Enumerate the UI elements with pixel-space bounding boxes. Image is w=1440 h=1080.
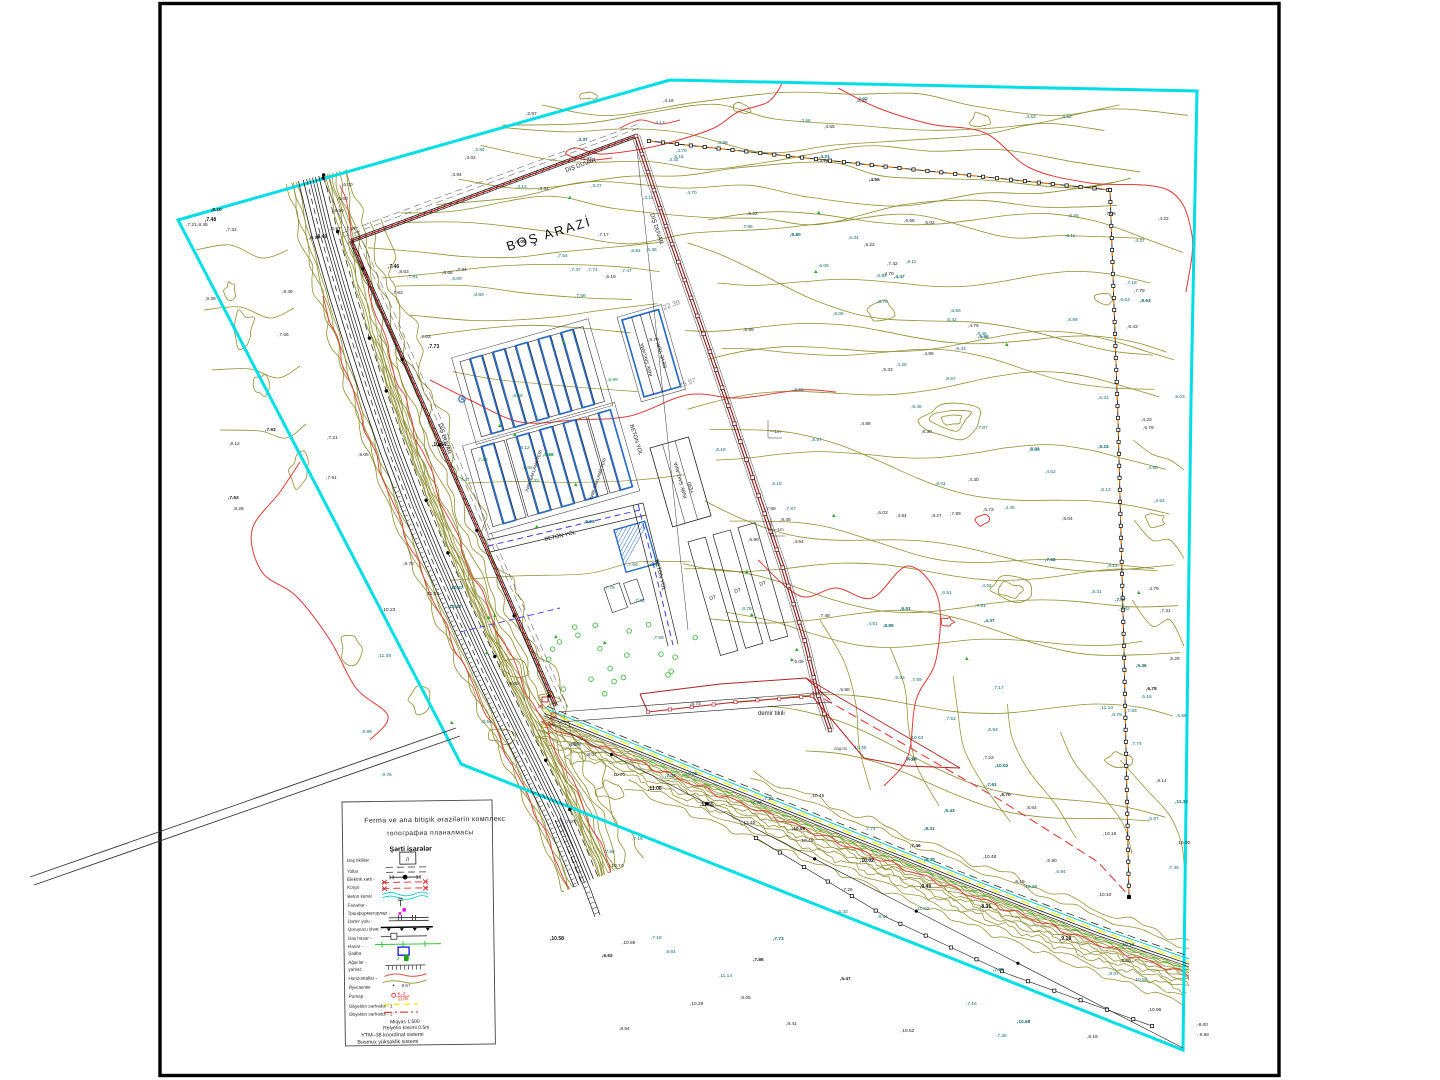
svg-text:,4.50: ,4.50 [1147, 465, 1158, 471]
svg-text:,6.33: ,6.33 [955, 346, 966, 352]
svg-text:,9.43: ,9.43 [944, 808, 955, 814]
svg-text:,9.76: ,9.76 [381, 772, 392, 778]
svg-text:,8.37: ,8.37 [1108, 971, 1119, 977]
svg-text:топографиа планалмасы: топографиа планалмасы [386, 829, 473, 837]
svg-text:,8.70: ,8.70 [309, 235, 320, 241]
svg-text:,10.48: ,10.48 [983, 854, 997, 860]
svg-text:,3.72: ,3.72 [818, 158, 829, 164]
svg-text:,7.07: ,7.07 [977, 425, 988, 431]
svg-text:,10.30: ,10.30 [853, 745, 867, 751]
svg-text:,7.73: ,7.73 [773, 936, 784, 942]
svg-text:Hasar -: Hasar - [348, 944, 364, 949]
svg-text:,6.63: ,6.63 [1119, 297, 1130, 303]
svg-text:,8.68: ,8.68 [543, 452, 554, 458]
svg-text:,5.42: ,5.42 [946, 317, 957, 323]
svg-text:,8.89: ,8.89 [883, 623, 894, 629]
svg-text:,-8.00: ,-8.00 [1196, 1022, 1208, 1027]
svg-text:,6.51: ,6.51 [900, 606, 911, 612]
svg-text:,9.84: ,9.84 [877, 914, 888, 920]
svg-text:,8.46: ,8.46 [976, 331, 987, 337]
svg-text:Л: Л [406, 857, 409, 863]
svg-text:,2.97: ,2.97 [526, 111, 537, 117]
svg-text:,10.52: ,10.52 [901, 1028, 915, 1034]
svg-text:,6.04: ,6.04 [1029, 446, 1040, 452]
svg-text:,6.93: ,6.93 [987, 727, 998, 733]
svg-text:,8.12: ,8.12 [1107, 563, 1118, 569]
svg-text:Транформаторлар -: Транформаторлар - [348, 910, 391, 916]
svg-text:,8.19: ,8.19 [1087, 1034, 1098, 1040]
svg-text:,5.87: ,5.87 [1148, 816, 1159, 822]
svg-text:,6.60: ,6.60 [337, 196, 348, 202]
svg-text:,8.40: ,8.40 [780, 517, 791, 523]
svg-text:,8.99: ,8.99 [361, 729, 372, 735]
svg-text:,10.42: ,10.42 [448, 604, 462, 610]
svg-text:,7.66: ,7.66 [278, 332, 289, 338]
svg-text:,8.76: ,8.76 [741, 606, 752, 612]
svg-text:,6.97: ,6.97 [330, 226, 341, 232]
svg-text:,11.14: ,11.14 [719, 973, 732, 979]
svg-text:,6.99: ,6.99 [607, 377, 618, 383]
svg-text:,6.03: ,6.03 [877, 510, 888, 516]
svg-text:,8.27: ,8.27 [931, 513, 942, 519]
svg-text:,10.50: ,10.50 [1134, 977, 1148, 983]
svg-text:,4.51: ,4.51 [867, 621, 878, 627]
svg-text:,9.50: ,9.50 [481, 719, 492, 725]
svg-text:,9.38: ,9.38 [205, 296, 216, 302]
svg-text:,11.10: ,11.10 [1100, 705, 1113, 711]
svg-text:,10.29: ,10.29 [690, 1001, 704, 1007]
svg-text:,9.49: ,9.49 [282, 289, 293, 295]
svg-text:,10.02: ,10.02 [995, 763, 1009, 769]
svg-text:,8.31: ,8.31 [924, 826, 935, 832]
svg-text:,7.22: ,7.22 [983, 755, 994, 761]
svg-text:,5.36: ,5.36 [1136, 663, 1147, 669]
svg-text:,3.53: ,3.53 [1025, 114, 1036, 120]
svg-text:Ağaclar -: Ağaclar - [348, 960, 367, 965]
svg-text:,4.16: ,4.16 [663, 98, 674, 104]
svg-text:,8.64: ,8.64 [665, 949, 676, 955]
svg-text:,7.63: ,7.63 [228, 495, 239, 501]
svg-text:,7.15: ,7.15 [632, 836, 643, 842]
svg-text:,5.59: ,5.59 [1176, 713, 1187, 719]
svg-text:dagıntı: dagıntı [834, 746, 847, 751]
svg-text:,9.14: ,9.14 [1156, 778, 1167, 784]
svg-text:,7.31: ,7.31 [1160, 608, 1171, 614]
svg-text:,7.67: ,7.67 [785, 506, 796, 512]
svg-text:,5.90: ,5.90 [333, 208, 344, 214]
svg-text:,4.22: ,4.22 [1158, 216, 1169, 222]
svg-text:,7.73: ,7.73 [428, 344, 439, 350]
svg-text:,7.08: ,7.08 [993, 967, 1004, 973]
svg-text:,8.30: ,8.30 [921, 429, 932, 435]
svg-text:,10.23: ,10.23 [382, 607, 396, 613]
svg-text:,7.68: ,7.68 [765, 506, 776, 512]
svg-text:,6.00: ,6.00 [342, 182, 353, 188]
svg-text:,7.17: ,7.17 [598, 232, 609, 238]
svg-text:,6.19: ,6.19 [715, 447, 726, 453]
svg-text:,5.79: ,5.79 [1143, 425, 1154, 431]
svg-text:,9.12: ,9.12 [229, 441, 240, 447]
svg-text:,4.54: ,4.54 [793, 539, 804, 545]
svg-text:,10.02: ,10.02 [860, 858, 874, 864]
svg-text:,6.78: ,6.78 [1146, 686, 1157, 692]
svg-text:,8.60: ,8.60 [473, 292, 484, 298]
svg-text:,10.45: ,10.45 [800, 838, 814, 844]
svg-text:,3.02: ,3.02 [465, 155, 476, 161]
svg-text:,8.05: ,8.05 [740, 995, 751, 1001]
svg-text:,6.89: ,6.89 [743, 327, 754, 333]
svg-text:,10.63: ,10.63 [910, 735, 924, 741]
svg-text:,10.10: ,10.10 [1098, 892, 1112, 898]
svg-text:,6.19: ,6.19 [605, 274, 616, 280]
svg-text:,7.59: ,7.59 [653, 635, 664, 641]
svg-text:demir tikili: demir tikili [758, 711, 785, 717]
svg-text:,7.47: ,7.47 [459, 477, 470, 483]
svg-text:,8.78: ,8.78 [877, 299, 888, 305]
svg-text:,6.51: ,6.51 [941, 590, 952, 596]
svg-text:Beton kanal: Beton kanal [347, 894, 371, 899]
svg-text:,5.02: ,5.02 [924, 220, 935, 226]
svg-text:,2.84: ,2.84 [474, 147, 485, 153]
svg-text:,6.33: ,6.33 [1098, 395, 1109, 401]
svg-text:,4.30: ,4.30 [968, 477, 979, 483]
svg-text:9.67: 9.67 [402, 983, 411, 988]
svg-text:,6.13: ,6.13 [1100, 487, 1111, 493]
svg-text:,7.68: ,7.68 [477, 457, 488, 463]
svg-text:,5.16: ,5.16 [1141, 694, 1152, 700]
svg-text:,7.37: ,7.37 [570, 267, 581, 273]
svg-text:,8.06: ,8.06 [833, 311, 844, 317]
svg-text:,10.44: ,10.44 [432, 442, 446, 448]
svg-text:,5.24: ,5.24 [1098, 444, 1109, 450]
svg-text:,12.45: ,12.45 [742, 820, 756, 826]
svg-text:,6.69: ,6.69 [793, 387, 804, 393]
svg-text:,7.99: ,7.99 [950, 511, 961, 517]
svg-text:,7.21: ,7.21 [186, 222, 197, 228]
svg-text:,6.36: ,6.36 [646, 247, 657, 253]
svg-text:,4.52: ,4.52 [1061, 114, 1072, 120]
svg-text:,4.45: ,4.45 [1004, 505, 1015, 511]
svg-text:,7.09: ,7.09 [905, 757, 916, 763]
svg-text:,10.91: ,10.91 [612, 772, 626, 778]
svg-text:yamac: yamac [348, 967, 362, 972]
svg-text:,5.16: ,5.16 [673, 154, 684, 160]
svg-text:Bosmux yüksəklik sistemi: Bosmux yüksəklik sistemi [357, 1039, 418, 1046]
svg-text:,6.55: ,6.55 [1068, 213, 1079, 219]
svg-text:,6.99: ,6.99 [584, 519, 595, 525]
svg-text:,7.16: ,7.16 [966, 1001, 977, 1007]
svg-text:,6.68: ,6.68 [442, 270, 453, 276]
svg-text:,3.27: ,3.27 [591, 183, 602, 189]
svg-text:,8.57: ,8.57 [945, 376, 956, 382]
svg-text:,7.91: ,7.91 [326, 475, 337, 481]
svg-text:,10.96: ,10.96 [1148, 1007, 1162, 1013]
svg-text:,3.34: ,3.34 [538, 186, 549, 192]
svg-text:,4.62: ,4.62 [981, 583, 992, 589]
svg-text:,5.64: ,5.64 [1026, 805, 1037, 811]
svg-text:Relyefin kəsimi 0.5m: Relyefin kəsimi 0.5m [383, 1025, 429, 1032]
svg-text:,6.05: ,6.05 [515, 239, 526, 245]
svg-text:,9.18: ,9.18 [1060, 936, 1071, 942]
svg-text:,8.11: ,8.11 [906, 259, 917, 265]
svg-text:,8.40: ,8.40 [1120, 958, 1131, 964]
svg-text:,7.18: ,7.18 [1126, 280, 1137, 286]
svg-text:,7.40: ,7.40 [1168, 865, 1179, 871]
svg-text:,7.93: ,7.93 [265, 427, 276, 433]
svg-text:,7.61: ,7.61 [986, 782, 997, 788]
svg-text:,11.06: ,11.06 [648, 786, 662, 792]
svg-text:,8.01: ,8.01 [935, 481, 946, 487]
svg-text:,4.47: ,4.47 [894, 274, 905, 280]
svg-text:,8.31: ,8.31 [980, 904, 991, 910]
svg-text:,7.21: ,7.21 [327, 435, 338, 441]
svg-text:,5.04: ,5.04 [1062, 516, 1073, 522]
svg-text:,8.81: ,8.81 [630, 248, 641, 254]
svg-text:,7.54: ,7.54 [557, 253, 568, 259]
svg-text:Şadba: Şadba [348, 951, 362, 956]
svg-text:,7.26: ,7.26 [842, 887, 853, 893]
svg-text:,8.11: ,8.11 [1065, 233, 1076, 239]
svg-text:,6.56: ,6.56 [904, 218, 915, 224]
svg-text:,7.33: ,7.33 [528, 478, 539, 484]
svg-text:,6.70: ,6.70 [1000, 792, 1011, 798]
svg-text:,7.47: ,7.47 [621, 268, 632, 274]
svg-text:,5.90: ,5.90 [748, 537, 759, 543]
svg-text:,9.79: ,9.79 [403, 561, 414, 567]
svg-text:Daş hasar -: Daş hasar - [348, 936, 372, 941]
svg-text:,7.83: ,7.83 [1126, 708, 1137, 714]
svg-text:,7.56: ,7.56 [604, 849, 615, 855]
svg-text:,6.62: ,6.62 [602, 953, 613, 959]
svg-text:,7.68: ,7.68 [575, 293, 586, 299]
svg-text:,10.68: ,10.68 [1017, 1019, 1031, 1025]
svg-text:,3.56: ,3.56 [800, 118, 811, 124]
svg-text:,7.05: ,7.05 [634, 598, 645, 604]
svg-text:,8.63: ,8.63 [1140, 298, 1151, 304]
svg-text:,10.86: ,10.86 [1024, 884, 1038, 890]
svg-text:,10.13: ,10.13 [1121, 942, 1135, 948]
svg-text:,10.99: ,10.99 [792, 826, 806, 832]
svg-text:,5.72: ,5.72 [983, 507, 994, 513]
svg-text:,5.80: ,5.80 [839, 687, 850, 693]
svg-text:,10.19: ,10.19 [1103, 831, 1117, 837]
svg-text:11.05: 11.05 [398, 996, 409, 1001]
svg-text:,6.43: ,6.43 [1127, 324, 1138, 330]
svg-text:,8.10: ,8.10 [211, 207, 222, 213]
svg-text:,4.55: ,4.55 [869, 177, 880, 183]
svg-text:,9.43: ,9.43 [920, 884, 931, 890]
svg-text:,7.51: ,7.51 [975, 603, 986, 609]
svg-text:,7.78: ,7.78 [604, 585, 615, 591]
svg-text:,5.00: ,5.00 [793, 659, 804, 665]
svg-text:,3.94: ,3.94 [451, 172, 462, 178]
svg-text:,10.02: ,10.02 [916, 906, 930, 912]
svg-text:,7.74: ,7.74 [1131, 741, 1142, 747]
svg-text:,5.34: ,5.34 [848, 235, 859, 241]
svg-text:Elektrik xətti -: Elektrik xətti - [347, 877, 375, 882]
svg-text:,4.86: ,4.86 [923, 351, 934, 357]
svg-text:,10.47: ,10.47 [450, 585, 464, 591]
svg-text:,4.88: ,4.88 [860, 421, 871, 427]
svg-text:,7.52: ,7.52 [1045, 557, 1056, 563]
svg-text:,10.74: ,10.74 [610, 863, 624, 869]
svg-text:,4.97: ,4.97 [581, 156, 592, 162]
svg-text:,7.91: ,7.91 [407, 274, 418, 280]
svg-text:,11.03: ,11.03 [426, 591, 439, 597]
svg-text:Yollar: Yollar [347, 869, 359, 874]
svg-text:,9.69: ,9.69 [508, 681, 519, 687]
svg-text:,7.46: ,7.46 [910, 843, 921, 849]
svg-text:,4.70: ,4.70 [883, 271, 894, 277]
svg-text:,6.89: ,6.89 [1067, 317, 1078, 323]
svg-text:,4.32: ,4.32 [1119, 606, 1130, 612]
svg-text:,7.47: ,7.47 [1115, 597, 1126, 603]
svg-text:,9.41: ,9.41 [786, 1021, 797, 1027]
svg-text:,7.95: ,7.95 [742, 224, 753, 230]
svg-text:,10.85: ,10.85 [684, 771, 698, 777]
svg-text:,7.27: ,7.27 [345, 226, 356, 232]
svg-text:,5.22: ,5.22 [747, 211, 758, 217]
svg-text:,5.29: ,5.29 [1169, 656, 1180, 662]
svg-text:,6.48: ,6.48 [924, 857, 935, 863]
svg-text:,6.09: ,6.09 [818, 263, 829, 269]
svg-text:,7.71: ,7.71 [587, 267, 598, 273]
svg-text:Qoruyucu divar -: Qoruyucu divar - [348, 926, 382, 931]
svg-text:,8.12: ,8.12 [519, 445, 530, 451]
svg-text:,7.22: ,7.22 [763, 796, 774, 802]
svg-text:,4.37: ,4.37 [1134, 238, 1145, 244]
svg-text:,9.28: ,9.28 [233, 506, 244, 512]
svg-text:,8.59: ,8.59 [512, 393, 523, 399]
svg-text:,8.03: ,8.03 [420, 334, 431, 340]
svg-text:,10.90: ,10.90 [1177, 840, 1191, 846]
svg-text:,4.52: ,4.52 [1045, 469, 1056, 475]
svg-text:,6.90: ,6.90 [1046, 858, 1057, 864]
svg-text:,8.30: ,8.30 [568, 742, 579, 748]
svg-text:,7.06: ,7.06 [1105, 211, 1116, 217]
svg-text:,7.35: ,7.35 [996, 1033, 1007, 1039]
svg-text:,4.79: ,4.79 [968, 323, 979, 329]
svg-text:,5.03: ,5.03 [1174, 394, 1185, 400]
svg-text:,7.34: ,7.34 [456, 267, 467, 273]
svg-text:,5.22: ,5.22 [864, 242, 875, 248]
svg-text:,8.46: ,8.46 [911, 404, 922, 410]
svg-text:,8.57: ,8.57 [811, 437, 822, 443]
svg-text:,7.74: ,7.74 [865, 826, 876, 832]
svg-text:,7.18: ,7.18 [651, 935, 662, 941]
svg-text:,8.31: ,8.31 [1091, 589, 1102, 595]
svg-text:,4.23: ,4.23 [1141, 417, 1152, 423]
svg-text:,3.11: ,3.11 [643, 195, 654, 201]
svg-text:,7.03: ,7.03 [627, 562, 638, 568]
svg-text:,5.33: ,5.33 [882, 367, 893, 373]
svg-text:,8.07: ,8.07 [586, 752, 597, 758]
svg-text:,8.00: ,8.00 [451, 276, 462, 282]
svg-text:,10.95: ,10.95 [622, 940, 636, 946]
svg-text:,10.58: ,10.58 [550, 936, 564, 942]
svg-text:,7.09: ,7.09 [911, 677, 922, 683]
svg-text:YTM–38 koordinat sistemi: YTM–38 koordinat sistemi [361, 1032, 423, 1039]
svg-text:,8.73: ,8.73 [648, 562, 659, 568]
svg-text:,5.93: ,5.93 [894, 675, 905, 681]
svg-text:,-6.98: ,-6.98 [1197, 1032, 1209, 1037]
svg-text:,4.26: ,4.26 [896, 362, 907, 368]
svg-text:,11.12: ,11.12 [1175, 799, 1188, 805]
svg-text:,7.32: ,7.32 [751, 800, 762, 806]
svg-text:,4.84: ,4.84 [896, 513, 907, 519]
svg-text:,8.80: ,8.80 [790, 232, 801, 238]
svg-text:,7.07: ,7.07 [565, 819, 576, 825]
svg-text:,7.42: ,7.42 [887, 261, 898, 267]
svg-text:,8.70: ,8.70 [648, 337, 659, 343]
svg-text:,7.86: ,7.86 [753, 957, 764, 963]
svg-text:,4.13: ,4.13 [516, 184, 527, 190]
svg-text:,7.63: ,7.63 [392, 290, 403, 296]
svg-text:,4.37: ,4.37 [984, 618, 995, 624]
svg-text:,6.33: ,6.33 [837, 909, 848, 915]
svg-text:,4.70: ,4.70 [686, 190, 697, 196]
svg-text:,8.54: ,8.54 [619, 1026, 630, 1032]
svg-text:,3.23: ,3.23 [856, 98, 867, 104]
svg-text:Daş tikililər: Daş tikililər [347, 858, 370, 863]
svg-text:,11.55: ,11.55 [700, 802, 714, 808]
svg-text:,8.82: ,8.82 [522, 465, 533, 471]
svg-text:,6.79: ,6.79 [1111, 712, 1122, 718]
svg-text:,4.65: ,4.65 [824, 124, 835, 130]
svg-text:,7.79: ,7.79 [1134, 288, 1145, 294]
svg-text:,4.62: ,4.62 [1154, 498, 1165, 504]
svg-text:,11.08: ,11.08 [378, 653, 391, 659]
svg-text:—1m: —1m [770, 429, 781, 434]
svg-text:,5.18: ,5.18 [771, 481, 782, 487]
svg-text:,6.47: ,6.47 [840, 976, 851, 982]
svg-text:,6.94: ,6.94 [1055, 869, 1066, 875]
svg-text:Körpü: Körpü [347, 885, 360, 890]
svg-text:,7.49: ,7.49 [819, 613, 830, 619]
svg-text:,10.45: ,10.45 [811, 793, 825, 799]
svg-text:,4.12: ,4.12 [654, 120, 665, 126]
svg-text:,7.04: ,7.04 [665, 773, 676, 779]
svg-text:Horizontallar -: Horizontallar - [348, 976, 377, 981]
svg-text:,4.79: ,4.79 [1148, 586, 1159, 592]
svg-text:,9.05: ,9.05 [358, 452, 369, 458]
svg-text:—1m: —1m [773, 527, 784, 532]
svg-text:,7.53: ,7.53 [945, 716, 956, 722]
svg-text:Fənərlər -: Fənərlər - [347, 903, 367, 908]
svg-text:,8.73: ,8.73 [690, 701, 701, 707]
svg-text:,7.32: ,7.32 [226, 227, 237, 233]
svg-text:,8.45: ,8.45 [197, 222, 208, 228]
svg-text:Pomap: Pomap [349, 994, 364, 999]
svg-text:Dəmir yolu -: Dəmir yolu - [348, 919, 373, 924]
svg-text:,3.37: ,3.37 [577, 137, 588, 143]
svg-text:,6.58: ,6.58 [950, 308, 961, 314]
svg-text:,3.98: ,3.98 [717, 140, 728, 146]
svg-text:,7.17: ,7.17 [993, 685, 1004, 691]
svg-text:,3.70: ,3.70 [676, 148, 687, 154]
